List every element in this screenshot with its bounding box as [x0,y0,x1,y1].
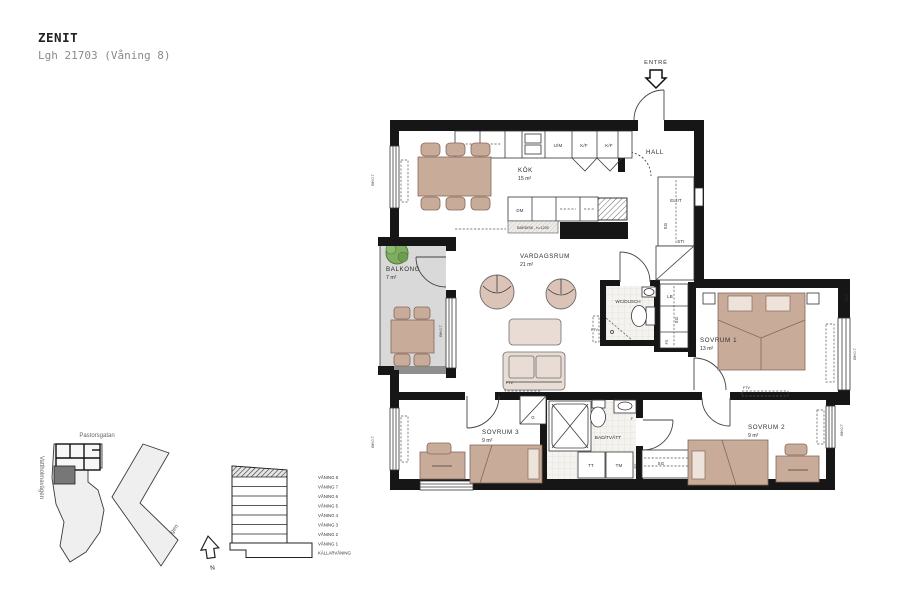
room-area-vardagsrum: 21 m² [520,262,534,268]
room-label-bad: BAD/TVÄTT [595,434,621,441]
site-plan: Pastorsgatan Vattholmavägen Råbyvägen [38,433,180,566]
street-pastorsgatan: Pastorsgatan [79,433,114,439]
label-sg-sov1: SG [674,316,679,323]
label-bardisk: BARDISK , h=1200 [517,226,549,230]
label-fs-bad: FS [634,463,638,468]
armchair [546,279,576,309]
label-fs-sov1: FS [665,339,669,344]
room-area-kok: 15 m² [518,176,532,182]
floor-label: VÅNING 5 [318,504,339,509]
label-ftv-sov2: FTV [743,386,751,390]
floor-label: VÅNING 4 [318,513,339,518]
window-sovrum2 [826,406,835,448]
floorplan-drawing: ENTRÉ HALL KÖK 15 m² VARDAGSRUM 21 m² BA… [0,0,900,600]
section-basement [230,543,312,558]
toilet-icon [632,306,656,327]
floor-label: VÅNING 8 [318,475,339,480]
single-bed [470,445,542,483]
wc-dusch-interior [606,286,656,340]
label-um: U/M [554,143,563,148]
room-area-sovrum1: 13 m² [700,346,714,352]
section-highlighted-floor [232,466,287,477]
room-label-wc: WC/DUSCH [615,299,640,304]
toilet-icon [591,400,606,427]
label-ftv-wc: FTV [591,328,599,332]
label-bh-sov2: BH 0.7 [840,424,844,435]
room-label-vardagsrum: VARDAGSRUM [520,253,570,260]
label-bh-sov3: BH 0.7 [371,436,375,447]
sovrum1-closets [660,284,688,348]
label-sg-sov2: SG [658,461,665,466]
entre-label: ENTRÉ [644,59,668,66]
room-label-sovrum2: SOVRUM 2 [748,424,785,431]
label-kf2: K/F [605,143,613,148]
window-sovrum3-west [390,408,399,470]
room-balkong [380,242,448,374]
site-apartment-highlight [54,466,75,484]
floor-label: VÅNING 3 [318,523,339,528]
armchair [480,275,514,309]
room-label-sovrum1: SOVRUM 1 [700,337,737,344]
room-label-hall: HALL [646,149,664,156]
double-bed [703,293,819,370]
section-tower [232,466,287,543]
door-wc [620,252,650,282]
window-sovrum3-south [420,481,473,490]
label-dm: DM [516,208,523,213]
street-vattholmavagen: Vattholmavägen [38,456,44,499]
sink-icon [614,400,636,413]
label-elit: EL/IT [670,198,682,203]
north-label: N [210,564,216,572]
sovrum2-furniture [688,440,819,485]
kitchen-sink [525,134,541,143]
floor-label: VÅNING 2 [318,532,339,537]
label-g: G [531,415,535,420]
label-tt: TT [588,463,594,468]
label-sg-hall: SG [663,222,668,229]
building-section: VÅNING 8 VÅNING 7 VÅNING 6 VÅNING 5 VÅNI… [230,466,352,558]
dining-table [418,143,491,210]
desk [776,444,819,482]
shower-icon [549,401,591,451]
coffee-table [509,319,561,345]
section-floor-labels: VÅNING 8 VÅNING 7 VÅNING 6 VÅNING 5 VÅNI… [318,475,352,556]
north-arrow-icon [199,535,220,559]
door-sovrum2 [702,398,730,426]
site-building-right [112,444,178,566]
desk [420,443,465,479]
room-area-balkong: 7 m² [386,275,397,281]
drawing-title: ZENIT [38,30,170,45]
label-sti: STI [677,239,684,244]
entrance-marker: ENTRÉ [644,59,668,88]
label-kf1: K/F [580,143,588,148]
room-area-sovrum2: 9 m² [748,433,759,439]
label-bh-sov1: BH 0.7 [853,348,857,359]
label-bh-kok: BH 0.7 [371,174,375,185]
apartment-subtitle: Lgh 21703 (Våning 8) [38,49,170,62]
north-arrow: N [199,535,222,573]
sovrum3-furniture [420,443,542,483]
label-tm: TM [616,463,623,468]
single-bed [688,440,768,485]
floor-label: VÅNING 1 [318,542,339,547]
floor-label: KÄLLARVÅNING [318,551,352,556]
room-area-sovrum3: 9 m² [482,438,493,444]
floor-label: VÅNING 6 [318,494,339,499]
window-balkong [446,298,456,368]
window-kok [390,146,399,208]
label-bh-balkong: BH 0.7 [439,325,443,336]
living-furniture [480,275,576,390]
label-ftv-vardagsrum: FTV [506,381,514,385]
floor-plan: ENTRÉ HALL KÖK 15 m² VARDAGSRUM 21 m² BA… [371,59,857,490]
label-sro: SRÖ [845,294,849,302]
floorplan-page: ZENIT Lgh 21703 (Våning 8) [0,0,900,600]
label-lb: LB [667,294,673,299]
door-bad [643,420,673,450]
room-label-kok: KÖK [518,167,533,174]
sink-icon [642,287,656,297]
structural-wall-hatch [597,198,627,220]
room-label-sovrum3: SOVRUM 3 [482,429,519,436]
door-sovrum3 [467,396,499,428]
entrance-arrow-icon [646,70,666,88]
door-entre [634,90,664,120]
room-label-balkong: BALKONG [386,266,420,273]
floor-label: VÅNING 7 [318,485,339,490]
drawing-header: ZENIT Lgh 21703 (Våning 8) [38,30,170,62]
window-sovrum1 [838,318,850,390]
